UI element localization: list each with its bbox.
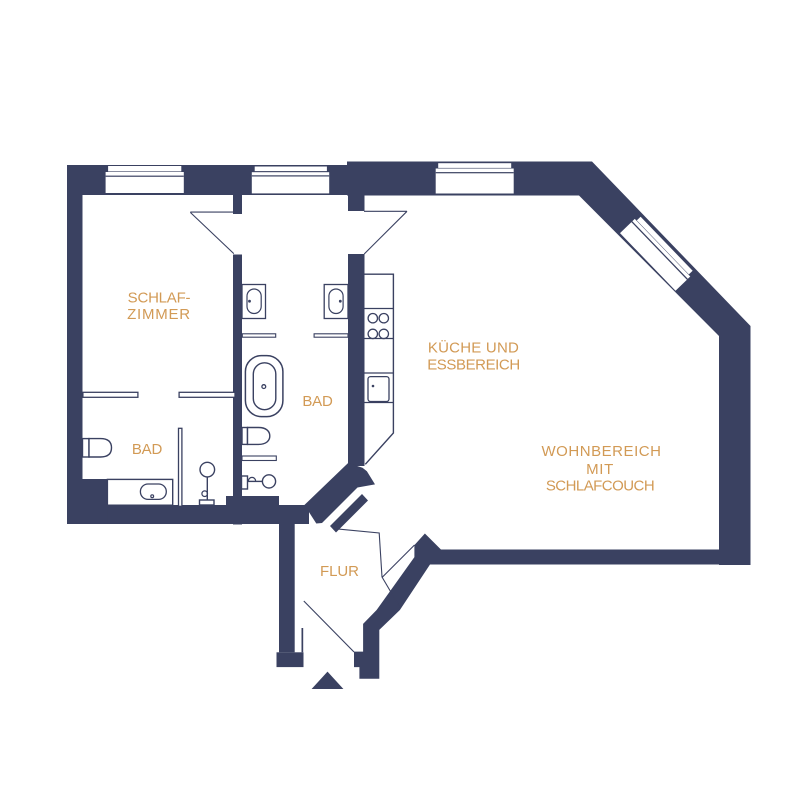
svg-text:ESSBEREICH: ESSBEREICH — [427, 357, 520, 374]
svg-text:KÜCHE UND: KÜCHE UND — [428, 339, 519, 357]
svg-text:BAD: BAD — [132, 441, 163, 458]
svg-text:SCHLAF-: SCHLAF- — [128, 290, 191, 307]
svg-text:FLUR: FLUR — [320, 563, 359, 580]
svg-text:ZIMMER: ZIMMER — [127, 306, 191, 323]
svg-text:SCHLAFCOUCH: SCHLAFCOUCH — [546, 478, 654, 495]
svg-text:BAD: BAD — [302, 393, 333, 410]
svg-text:MIT: MIT — [586, 461, 614, 478]
svg-text:WOHNBEREICH: WOHNBEREICH — [541, 443, 661, 460]
